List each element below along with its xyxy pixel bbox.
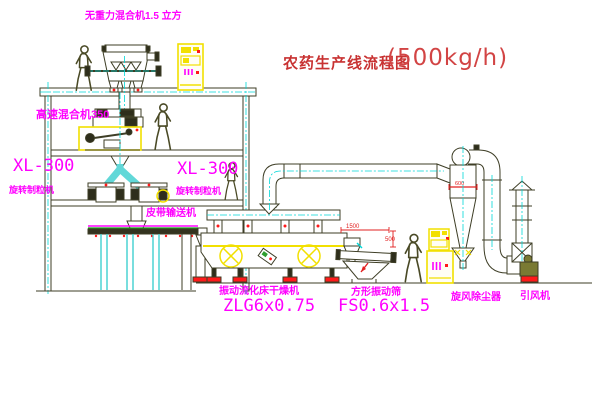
high-speed-mixer xyxy=(79,92,143,170)
control-cabinet-top xyxy=(178,44,203,90)
drop-chute xyxy=(127,206,146,228)
sieve-height-dimension: 500 xyxy=(385,237,396,243)
person-mid-floor xyxy=(155,104,170,149)
control-cabinet-right xyxy=(427,229,453,283)
label-fan: 引风机 xyxy=(520,292,550,302)
exhaust-duct xyxy=(260,164,450,214)
cyclone-separator: 600 xyxy=(449,145,500,272)
label-cyclone: 旋风除尘器 xyxy=(451,293,501,303)
label-granulator-mid-model: XL-300 xyxy=(177,161,238,178)
fluid-bed-dryer xyxy=(193,210,362,282)
label-gravity-mixer: 无重力混合机1.5 立方 xyxy=(85,12,182,22)
label-belt-conveyor: 皮带输送机 xyxy=(146,209,196,219)
belt-conveyor xyxy=(88,226,209,290)
label-high-speed-mixer: 高速混合机350 xyxy=(36,110,109,121)
label-dryer-model: ZLG6x0.75 xyxy=(223,298,315,315)
granulator-left xyxy=(88,183,124,202)
label-granulator-left-name: 旋转制粒机 xyxy=(9,186,54,195)
diagram-capacity: (500kg/h) xyxy=(387,45,508,71)
person-ground xyxy=(405,234,421,281)
label-sieve-model: FS0.6x1.5 xyxy=(338,298,430,315)
sieve-length-dimension: 1500 xyxy=(346,224,360,230)
label-granulator-mid-name: 旋转制粒机 xyxy=(176,187,221,196)
diagram-canvas: 600 xyxy=(0,0,600,403)
label-granulator-left-model: XL-300 xyxy=(13,158,74,175)
granulator-right xyxy=(131,183,169,202)
gravity-free-mixer xyxy=(85,45,161,112)
